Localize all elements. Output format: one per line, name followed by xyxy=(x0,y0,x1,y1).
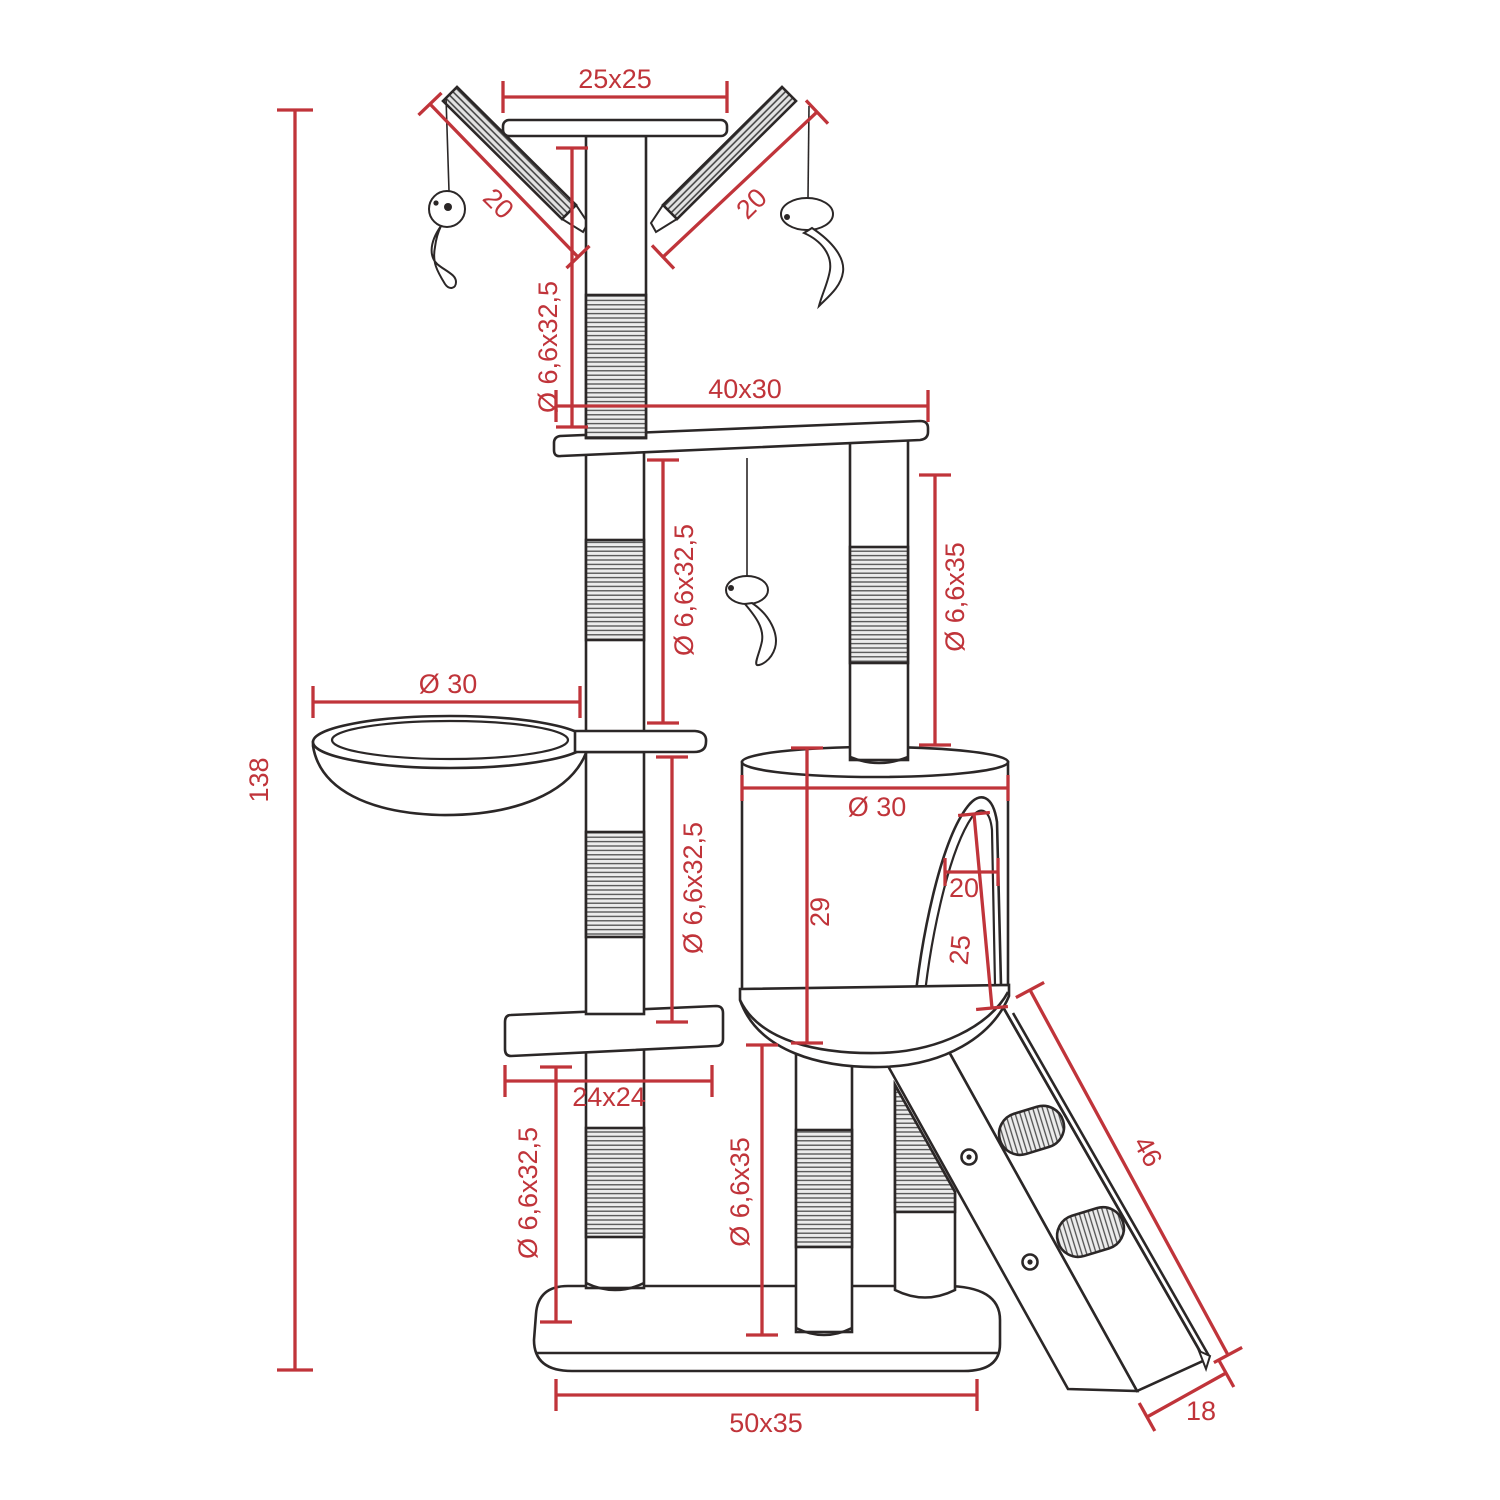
label-middle-platform: 40x30 xyxy=(708,374,782,404)
label-ladder-width: 18 xyxy=(1186,1396,1216,1426)
label-bottom-left-post: Ø 6,6x32,5 xyxy=(513,1127,543,1259)
label-upper-right-post: Ø 6,6x35 xyxy=(940,542,970,652)
label-small-platform: 24x24 xyxy=(572,1082,646,1112)
cat-tree-technical-drawing: 138 25x25 20 20 Ø 6,6x32,5 40x30 Ø 6,6x3… xyxy=(0,0,1500,1500)
label-base-plate: 50x35 xyxy=(729,1408,803,1438)
label-top-post: Ø 6,6x32,5 xyxy=(533,281,563,413)
dim-bottom-left-post xyxy=(540,1067,572,1322)
dim-overall-height xyxy=(277,110,313,1370)
middle-post xyxy=(586,438,644,1014)
label-opening-height: 25 xyxy=(944,934,977,967)
label-overall-height: 138 xyxy=(244,757,274,802)
basket xyxy=(313,716,587,815)
label-barrel-diameter: Ø 30 xyxy=(848,792,907,822)
dim-base-plate xyxy=(556,1379,977,1411)
label-upper-left-post: Ø 6,6x32,5 xyxy=(669,524,699,656)
base-plate xyxy=(534,1286,1000,1371)
label-ladder-length: 46 xyxy=(1127,1131,1168,1172)
top-platform xyxy=(503,120,727,136)
right-scratch-ramp xyxy=(651,87,796,232)
hanging-toy-middle xyxy=(726,458,776,665)
label-bottom-middle-post: Ø 6,6x35 xyxy=(725,1137,755,1247)
basket-arm xyxy=(575,731,706,752)
top-post xyxy=(586,136,646,438)
hanging-toy-ball xyxy=(429,97,465,288)
bottom-middle-post xyxy=(796,1048,852,1335)
drawing-canvas: 138 25x25 20 20 Ø 6,6x32,5 40x30 Ø 6,6x3… xyxy=(0,0,1500,1500)
label-barrel-height: 29 xyxy=(805,897,835,927)
upper-right-post xyxy=(850,438,908,763)
label-basket: Ø 30 xyxy=(419,669,478,699)
label-middle-post: Ø 6,6x32,5 xyxy=(678,822,708,954)
label-top-platform: 25x25 xyxy=(578,64,652,94)
label-opening-width: 20 xyxy=(949,873,979,903)
